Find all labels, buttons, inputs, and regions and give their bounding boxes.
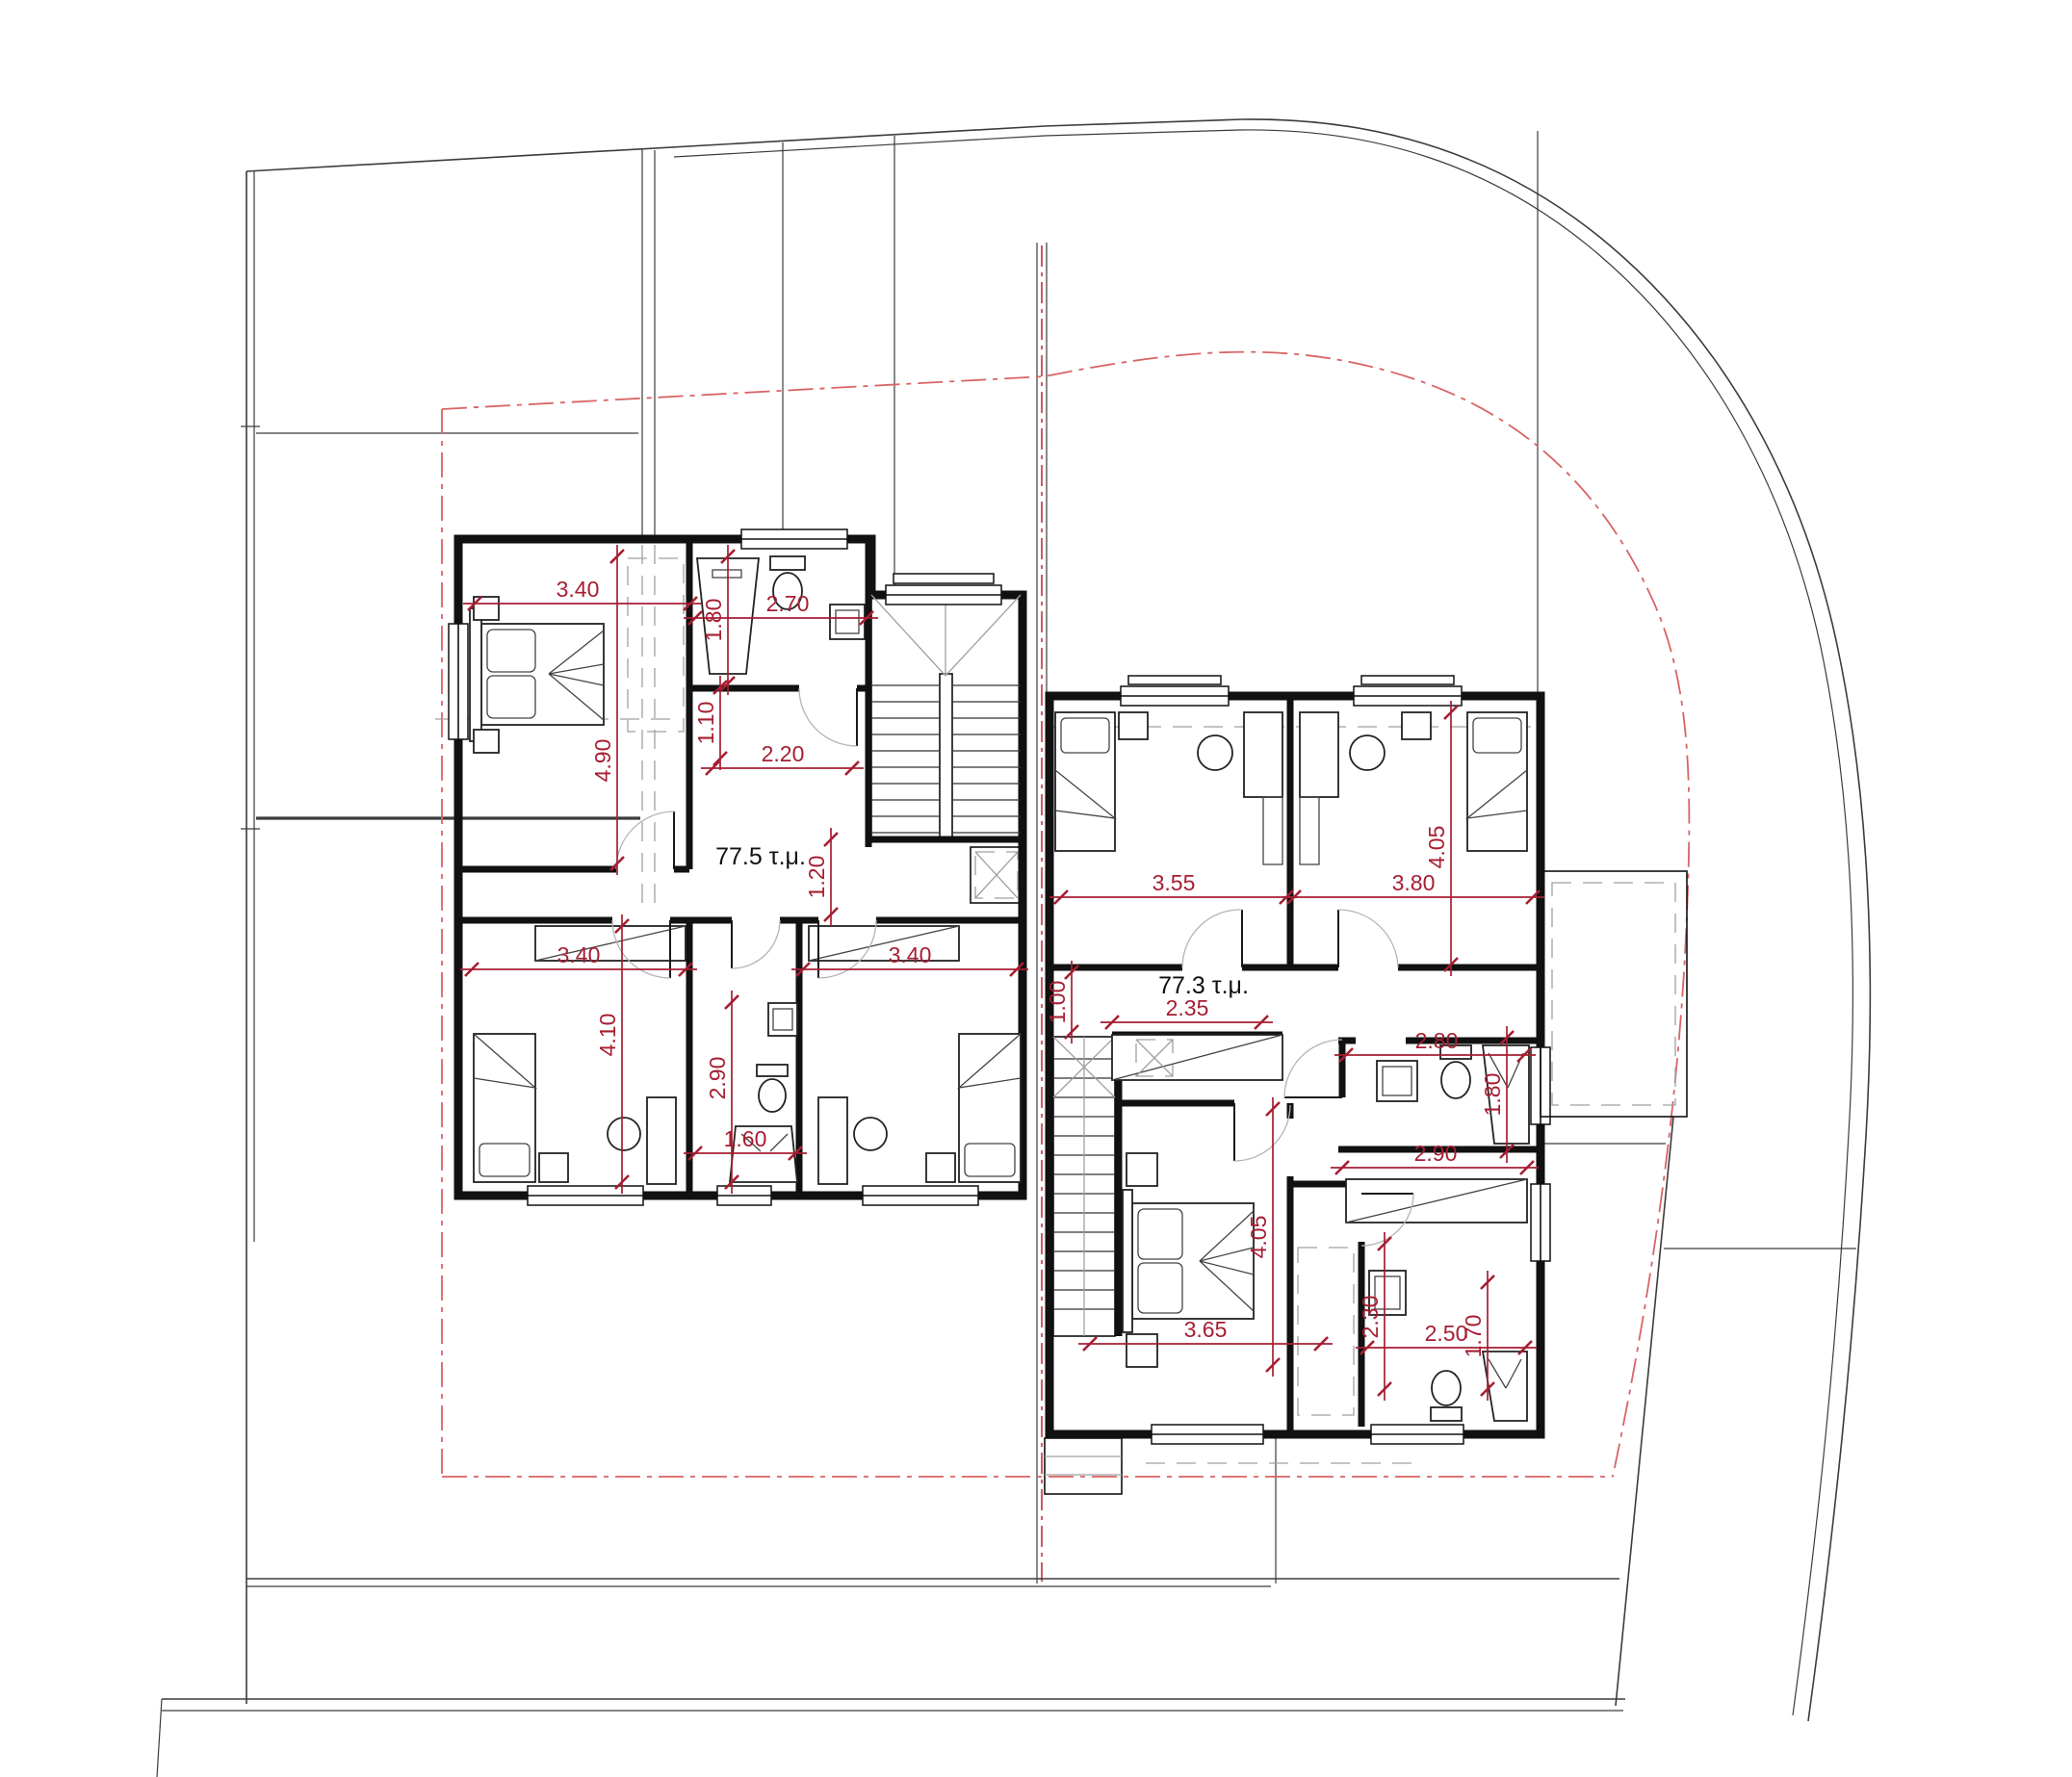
skylight-a-cross xyxy=(975,852,1018,898)
dimension-label: 2.30 xyxy=(1358,1296,1383,1339)
dimension: 4.05 xyxy=(1424,701,1458,976)
site-boundary-right-slant xyxy=(1616,1117,1673,1706)
dimension-label: 1.80 xyxy=(1480,1073,1505,1117)
door-arc-b-master xyxy=(1234,1105,1290,1161)
site-boundary xyxy=(157,119,1870,1777)
bed-b-tr xyxy=(1467,712,1527,851)
bathroom-a-lower xyxy=(730,1003,797,1182)
bedroom-b-top-left xyxy=(1055,712,1282,864)
desk-b-tr xyxy=(1300,712,1338,797)
dimension: 2.50 xyxy=(1356,1321,1537,1354)
window-a-bed-lr-bottom xyxy=(863,1186,978,1205)
nightstand-a-lr xyxy=(926,1153,955,1182)
window-b-master-bottom xyxy=(1152,1425,1263,1444)
toilet-b-low-tank xyxy=(1431,1407,1462,1421)
toilet-b-top-bowl xyxy=(1441,1062,1470,1098)
nightstand-b-tl xyxy=(1119,712,1148,739)
chair-b-tl xyxy=(1198,735,1232,770)
desk-b-tl xyxy=(1244,712,1282,797)
dimension-label: 3.40 xyxy=(889,942,932,967)
door-arc-a-master xyxy=(616,811,674,869)
dimension: 1.20 xyxy=(804,828,838,926)
dimension-label: 2.90 xyxy=(705,1057,730,1100)
dimension-label: 3.65 xyxy=(1184,1317,1228,1342)
nightstand-a-2 xyxy=(474,730,499,753)
door-arc-b-bed-tr xyxy=(1338,910,1398,967)
dimension-label: 1.10 xyxy=(693,702,718,745)
dimension-label: 3.80 xyxy=(1392,870,1436,895)
toilet-b-low-bowl xyxy=(1432,1371,1461,1405)
stair-a-treads-right xyxy=(952,685,1021,833)
stair-unit-b xyxy=(1053,1037,1115,1336)
bathroom-b-lower xyxy=(1369,1271,1527,1421)
window-b-bed-tl-top xyxy=(1121,676,1229,706)
dimension-label: 4.05 xyxy=(1246,1216,1271,1259)
closet-b-corridor xyxy=(1346,1179,1527,1223)
desk-b-tl-return xyxy=(1263,797,1282,864)
stair-unit-a xyxy=(871,595,1021,839)
floor-plan-page: { "drawing": { "type": "architectural-fl… xyxy=(0,0,2072,1777)
annex-b-inner xyxy=(1552,883,1675,1105)
dimension-label: 2.50 xyxy=(1425,1321,1468,1346)
skylight-shaft-a xyxy=(971,847,1023,903)
window-b-bed-tr-top xyxy=(1354,676,1462,706)
area-label-unit-a: 77.5 τ.μ. xyxy=(715,843,806,870)
dimension-label: 3.55 xyxy=(1153,870,1196,895)
toilet-a-low-tank xyxy=(757,1065,788,1076)
window-a-bath-top xyxy=(741,529,847,549)
dimension-label: 4.90 xyxy=(590,739,615,783)
dimension-label: 3.40 xyxy=(557,942,601,967)
chair-b-tr xyxy=(1350,735,1385,770)
stair-a-landing-diagonals xyxy=(871,595,1021,676)
wardrobe-b-dressing xyxy=(1298,1248,1354,1415)
toilet-a-low-bowl xyxy=(759,1079,786,1112)
double-bed-b-headboard xyxy=(1123,1190,1132,1332)
dimension: 2.20 xyxy=(701,741,864,775)
bed-b-tl xyxy=(1055,712,1115,851)
site-boundary-top-inner xyxy=(674,130,1852,1715)
double-bed-a-headboard xyxy=(470,608,481,741)
porch-b xyxy=(1045,1438,1122,1494)
window-b-corridor-right xyxy=(1531,1184,1550,1261)
chair-a-ll xyxy=(608,1118,640,1150)
dimension-label: 4.10 xyxy=(595,1014,620,1057)
dimension: 2.35 xyxy=(1101,995,1273,1029)
window-a-stair-top xyxy=(886,574,1001,605)
annex-b-outline xyxy=(1541,871,1687,1117)
window-a-bed-ll-bottom xyxy=(528,1186,643,1205)
dimension-label: 3.40 xyxy=(557,577,600,602)
dimension-label: 2.90 xyxy=(1414,1141,1458,1166)
door-arc-b-bed-tl xyxy=(1182,910,1242,967)
porch-b-steps xyxy=(1045,1456,1122,1475)
dimension-label: 2.20 xyxy=(762,741,805,766)
door-arc-a-bath-low xyxy=(732,920,780,968)
dimension-label: 2.80 xyxy=(1415,1028,1459,1053)
desk-b-tr-return xyxy=(1300,797,1319,864)
unit-b xyxy=(1045,676,1687,1494)
dimension: 3.55 xyxy=(1049,870,1298,904)
annex-b-right xyxy=(1541,871,1687,1117)
window-b-bath-low-bottom xyxy=(1371,1425,1463,1444)
double-bed-a xyxy=(481,624,604,725)
dimension: 4.05 xyxy=(1246,1097,1280,1377)
dimension-label: 2.35 xyxy=(1166,995,1209,1020)
dimension-label: 1.60 xyxy=(724,1126,767,1151)
porch-b-outline xyxy=(1045,1438,1122,1494)
chair-a-lr xyxy=(854,1118,887,1150)
bed-a-lr xyxy=(959,1034,1021,1182)
floor-plan-canvas: 77.5 τ.μ. 77.3 τ.μ. 3.402.701.801.102.20… xyxy=(0,0,2072,1777)
desk-a-ll xyxy=(647,1097,676,1184)
setback-top-right-curve xyxy=(442,352,1689,1477)
hall-closet-b xyxy=(1112,1035,1282,1080)
dimension: 3.80 xyxy=(1282,870,1544,904)
nightstand-b-tr xyxy=(1402,712,1431,739)
setback-outline xyxy=(442,352,1689,1477)
stair-a-treads-left xyxy=(871,685,940,833)
dimension-label: 1.20 xyxy=(804,856,829,899)
master-bedroom-b xyxy=(1123,1153,1354,1415)
toilet-a-top-tank xyxy=(770,556,805,570)
window-a-master-left xyxy=(449,624,468,739)
dimension-label: 2.70 xyxy=(766,591,810,616)
door-arc-a-bath-top xyxy=(799,688,857,746)
double-bed-b xyxy=(1132,1203,1254,1319)
nightstand-b-m1 xyxy=(1127,1153,1157,1186)
bedroom-b-top-right xyxy=(1300,712,1527,864)
bed-a-ll xyxy=(474,1034,535,1182)
stair-a-core-wall xyxy=(940,674,952,839)
nightstand-b-m2 xyxy=(1127,1334,1157,1367)
door-arc-b-bath-top xyxy=(1284,1040,1342,1097)
dimension-label: 1.80 xyxy=(701,599,726,642)
nightstand-a-ll xyxy=(539,1153,568,1182)
dimension-label: 1.00 xyxy=(1045,981,1070,1024)
desk-a-lr xyxy=(818,1097,847,1184)
wardrobe-a-master xyxy=(628,558,684,732)
site-boundary-bottom-left-step xyxy=(157,1699,162,1777)
dimension-label: 4.05 xyxy=(1424,826,1449,869)
